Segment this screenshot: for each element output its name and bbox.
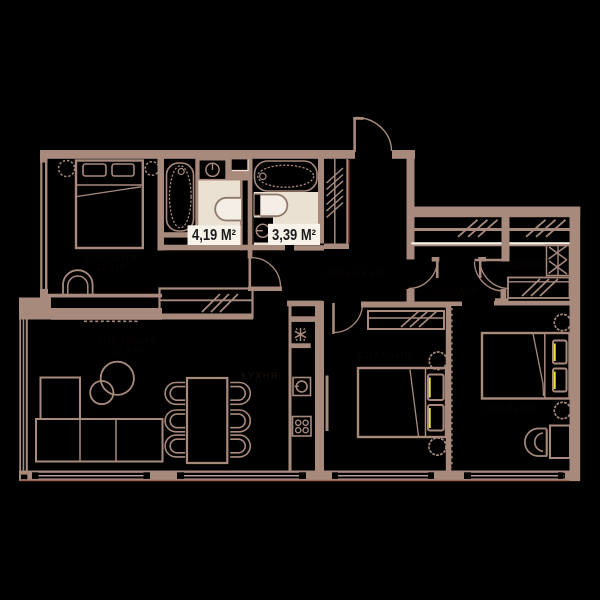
svg-text:ГАРДЕРОБ: ГАРДЕРОБ	[495, 261, 544, 270]
svg-text:4,19 М²: 4,19 М²	[192, 227, 236, 244]
svg-text:12,9 М²: 12,9 М²	[97, 262, 126, 272]
svg-text:23,3 М²: 23,3 М²	[114, 345, 143, 355]
svg-text:3,39 М²: 3,39 М²	[272, 227, 316, 244]
svg-text:СПАЛЬНЯ: СПАЛЬНЯ	[483, 404, 537, 414]
svg-text:ПРИХОЖАЯ: ПРИХОЖАЯ	[324, 269, 384, 279]
svg-text:КУХНЯ: КУХНЯ	[241, 371, 279, 381]
svg-text:КОРИДОР: КОРИДОР	[431, 287, 479, 297]
svg-text:СПАЛЬНЯ: СПАЛЬНЯ	[358, 350, 412, 360]
